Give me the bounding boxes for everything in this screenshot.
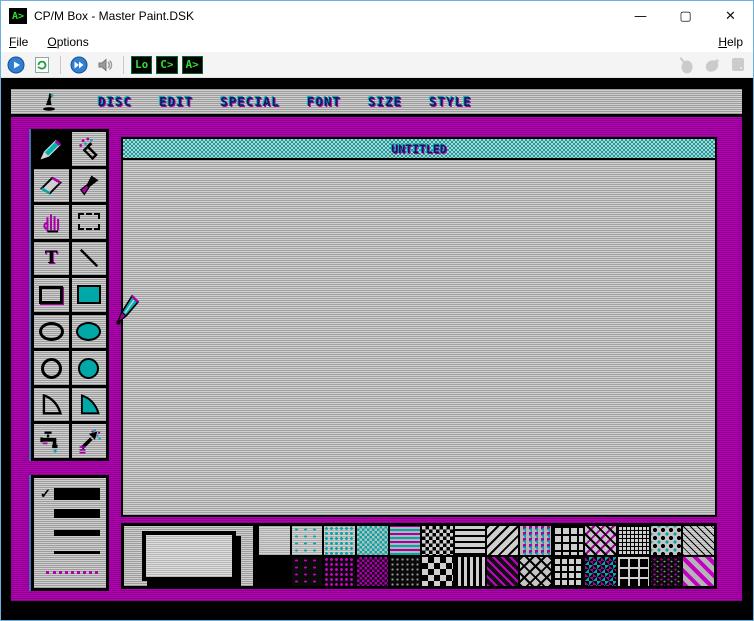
slope-filled-icon xyxy=(76,392,102,418)
pattern-cyan-dots-sparse[interactable] xyxy=(292,526,323,555)
paint-menubar: DISC EDIT SPECIAL FONT SIZE STYLE xyxy=(11,89,742,117)
paint-menu-disc[interactable]: DISC xyxy=(98,94,132,109)
window-titlebar[interactable]: A> CP/M Box - Master Paint.DSK — ▢ ✕ xyxy=(1,1,753,31)
tool-eraser[interactable] xyxy=(34,169,69,203)
faucet-icon xyxy=(38,428,64,454)
app-icon: A> xyxy=(9,8,27,24)
pattern-cyan-dots[interactable] xyxy=(324,526,355,555)
line-icon xyxy=(76,245,102,271)
emulated-screen: DISC EDIT SPECIAL FONT SIZE STYLE xyxy=(11,89,742,601)
maximize-button[interactable]: ▢ xyxy=(663,1,708,31)
play-icon xyxy=(7,56,25,74)
tool-line[interactable] xyxy=(72,242,107,276)
pattern-grid xyxy=(256,523,717,589)
tool-brush[interactable] xyxy=(72,169,107,203)
tool-rectangle[interactable] xyxy=(34,278,69,312)
close-button[interactable]: ✕ xyxy=(708,1,753,31)
a-drive-button[interactable]: A> xyxy=(182,56,203,74)
reset-button[interactable] xyxy=(31,54,53,75)
ellipse-filled-icon xyxy=(76,322,101,341)
tool-fill-spray[interactable] xyxy=(72,424,107,458)
pattern-magenta-dots[interactable] xyxy=(324,557,355,586)
keypad-button[interactable] xyxy=(727,54,749,75)
canvas-title: UNTITLED xyxy=(391,142,446,156)
brush-icon xyxy=(76,172,102,198)
toolbar-separator xyxy=(60,56,61,74)
menu-file[interactable]: File xyxy=(9,35,28,49)
pattern-magenta-dots-sparse[interactable] xyxy=(292,557,323,586)
paint-desktop: T xyxy=(11,117,742,601)
check-icon: ✓ xyxy=(40,489,54,499)
tool-ellipse[interactable] xyxy=(34,315,69,349)
tool-faucet[interactable] xyxy=(34,424,69,458)
tool-circle-filled[interactable] xyxy=(72,351,107,385)
circle-filled-icon xyxy=(78,358,99,379)
speaker-icon xyxy=(96,56,114,74)
spray-icon xyxy=(76,136,102,162)
pattern-h-stripes[interactable] xyxy=(455,526,486,555)
line-width-sample xyxy=(54,551,100,554)
tool-ellipse-filled[interactable] xyxy=(72,315,107,349)
app-window: A> CP/M Box - Master Paint.DSK — ▢ ✕ Fil… xyxy=(0,0,754,621)
rectangle-filled-icon xyxy=(77,285,101,304)
line-width-selector: ✓ xyxy=(31,475,109,591)
emulator-display: DISC EDIT SPECIAL FONT SIZE STYLE xyxy=(1,78,753,620)
pattern-bricks[interactable] xyxy=(553,557,584,586)
pattern-grid-lines[interactable] xyxy=(553,526,584,555)
pattern-star-dots[interactable] xyxy=(651,526,682,555)
keypad-icon xyxy=(730,56,746,73)
pattern-v-stripes[interactable] xyxy=(455,557,486,586)
tool-marquee[interactable] xyxy=(72,205,107,239)
pattern-magenta-dither[interactable] xyxy=(357,557,388,586)
paint-menu-style[interactable]: STYLE xyxy=(429,94,472,109)
mouse-capture-button[interactable] xyxy=(701,54,723,75)
play-button[interactable] xyxy=(5,54,27,75)
paint-menu-font[interactable]: FONT xyxy=(307,94,341,109)
pattern-noise-color[interactable] xyxy=(520,526,551,555)
line-width-option-4[interactable] xyxy=(40,546,100,560)
tool-hand[interactable] xyxy=(34,205,69,239)
pattern-diag-hatch[interactable] xyxy=(683,526,714,555)
fast-forward-button[interactable] xyxy=(68,54,90,75)
marquee-icon xyxy=(78,213,100,230)
line-width-sample xyxy=(46,571,98,574)
pattern-magenta-diag-stripes[interactable] xyxy=(683,557,714,586)
paint-menu-edit[interactable]: EDIT xyxy=(159,94,193,109)
mouse-button[interactable] xyxy=(675,54,697,75)
pattern-cyan-magenta-lines[interactable] xyxy=(390,526,421,555)
mouse-capture-icon xyxy=(703,56,721,74)
pattern-preview xyxy=(121,523,256,589)
line-width-sample xyxy=(54,509,100,518)
tool-text[interactable]: T xyxy=(34,242,69,276)
ellipse-icon xyxy=(39,322,64,341)
pattern-magenta-diag-dither[interactable] xyxy=(487,557,518,586)
line-width-option-2[interactable] xyxy=(40,506,100,520)
canvas-surface[interactable] xyxy=(123,160,715,515)
pattern-basketweave[interactable] xyxy=(618,526,649,555)
pattern-checker-large[interactable] xyxy=(422,557,453,586)
pencil-cursor-icon xyxy=(114,286,140,326)
pattern-dark-noise[interactable] xyxy=(651,557,682,586)
tool-slope-filled[interactable] xyxy=(72,388,107,422)
hand-icon xyxy=(38,209,64,235)
lo-button[interactable]: Lo xyxy=(131,56,152,74)
reset-icon xyxy=(34,56,50,74)
minimize-button[interactable]: — xyxy=(618,1,663,31)
pattern-zigzag[interactable] xyxy=(585,526,616,555)
mouse-icon xyxy=(678,56,695,74)
rectangle-icon xyxy=(39,286,63,304)
menu-help[interactable]: Help xyxy=(718,35,743,49)
line-width-sample xyxy=(54,530,100,536)
pattern-diag-stripes[interactable] xyxy=(487,526,518,555)
pattern-checker-fine[interactable] xyxy=(422,526,453,555)
menu-options[interactable]: Options xyxy=(47,35,88,49)
c-drive-button[interactable]: C> xyxy=(156,56,177,74)
pattern-palette xyxy=(121,523,717,589)
pattern-preview-swatch xyxy=(142,531,236,581)
fill-spray-icon xyxy=(76,428,102,454)
circle-icon xyxy=(41,358,62,379)
pattern-cross-hatch[interactable] xyxy=(520,557,551,586)
window-title: CP/M Box - Master Paint.DSK xyxy=(34,9,618,23)
app-toolbar: Lo C> A> xyxy=(1,52,753,78)
paint-menu-size[interactable]: SIZE xyxy=(368,94,402,109)
pattern-blank[interactable] xyxy=(259,526,290,555)
paint-logo-icon xyxy=(41,92,57,111)
tool-slope[interactable] xyxy=(34,388,69,422)
line-width-option-5[interactable] xyxy=(40,565,100,579)
toolbar-separator xyxy=(123,56,124,74)
tool-palette: T xyxy=(31,129,109,461)
line-width-sample xyxy=(54,488,100,500)
pencil-icon xyxy=(38,136,64,162)
tool-pencil[interactable] xyxy=(34,132,69,166)
pattern-dark-speckle[interactable] xyxy=(390,557,421,586)
pattern-window-grid[interactable] xyxy=(618,557,649,586)
tool-circle[interactable] xyxy=(34,351,69,385)
text-tool-icon: T xyxy=(45,248,58,268)
pattern-black[interactable] xyxy=(259,557,290,586)
paint-menu-special[interactable]: SPECIAL xyxy=(220,94,280,109)
canvas-titlebar[interactable]: UNTITLED xyxy=(123,139,715,160)
volume-button[interactable] xyxy=(94,54,116,75)
pattern-cyan-magenta-check[interactable] xyxy=(585,557,616,586)
tool-spray[interactable] xyxy=(72,132,107,166)
fast-forward-icon xyxy=(70,56,88,74)
app-menubar: File Options Help xyxy=(1,31,753,52)
tool-rectangle-filled[interactable] xyxy=(72,278,107,312)
pattern-cyan-dither[interactable] xyxy=(357,526,388,555)
canvas-window: UNTITLED xyxy=(121,137,717,517)
line-width-option-3[interactable] xyxy=(40,526,100,540)
slope-icon xyxy=(38,392,64,418)
eraser-icon xyxy=(38,172,64,198)
line-width-option-1[interactable]: ✓ xyxy=(40,487,100,501)
